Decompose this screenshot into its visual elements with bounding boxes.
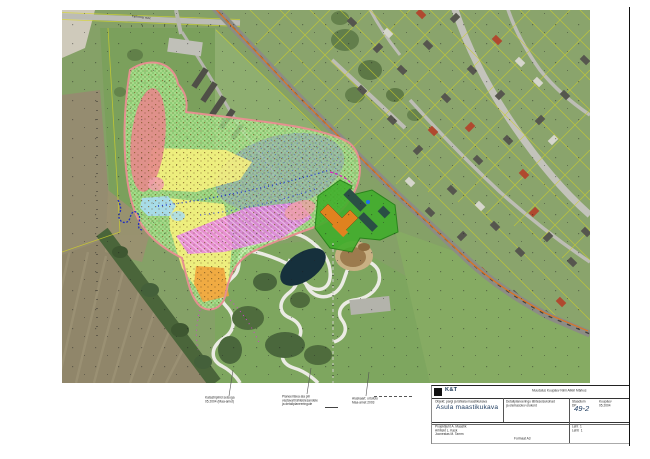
aerial-photo <box>40 0 596 383</box>
title-block-rule <box>432 398 629 399</box>
sheet-number: 49-2 <box>574 404 589 413</box>
date-cell: Kuupäev 05.2004 <box>599 400 624 408</box>
annotation-block-2: Planeeritava ala piir vastavalt lähteüle… <box>282 395 352 406</box>
drawing-title: Asula maastikukava <box>436 404 498 411</box>
survey-dots <box>62 10 590 383</box>
sheet-count-cell: Leht 1 Lehti 1 <box>572 425 592 433</box>
revision-header: Muudatus Kuupäev Nimi Allkiri Märkus <box>532 389 627 393</box>
middle-notes: Detailplaneeringu lähteseisukohad ja ole… <box>506 400 566 408</box>
title-block-rule <box>432 422 629 423</box>
annotation-block-1: Katastripiirid seisuga 05.2004 (Maa-amet… <box>205 396 270 404</box>
footer-note: Formaat A3 <box>514 437 554 441</box>
leader-dash-long <box>374 396 412 397</box>
title-block-rule <box>503 398 504 422</box>
company-name: K&T <box>445 387 457 393</box>
drawing-sheet: Tallinna mnt Katastripiirid seisuga 05.2… <box>0 0 650 459</box>
title-block-rule <box>569 398 570 444</box>
annotation-block-3: Aluskaart: ortofoto Maa-amet 2003 <box>352 397 417 405</box>
leader-dash-short <box>325 407 338 408</box>
company-logo <box>434 388 442 396</box>
crew-lines: Projektijuht A. Maastik Arhitekt L. Kask… <box>435 425 500 436</box>
title-block: K&T Muudatus Kuupäev Nimi Allkiri Märkus… <box>431 385 629 444</box>
title-block-rule <box>432 443 629 444</box>
object-line: Objekt: pargi ja lähiala maastikukava <box>435 400 500 404</box>
sheet-border <box>629 7 630 446</box>
